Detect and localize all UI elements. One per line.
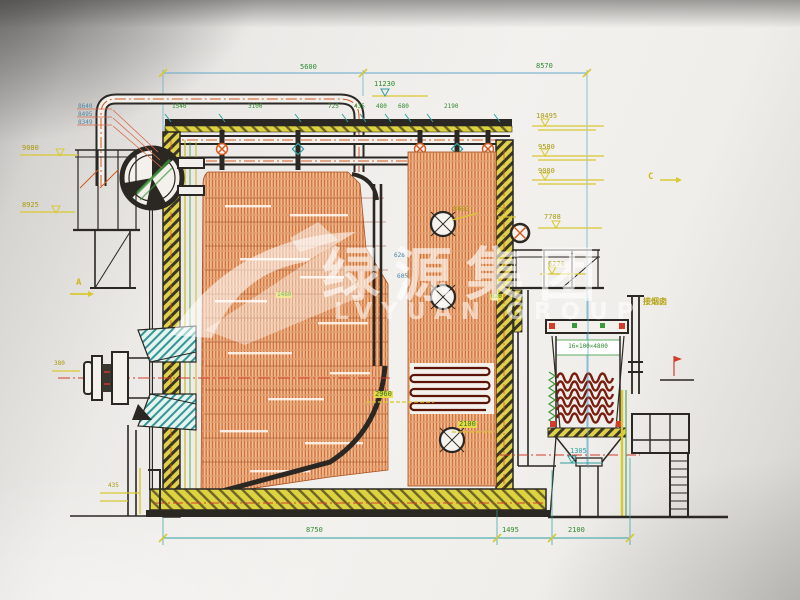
dim-label-11230: 11230: [374, 81, 395, 88]
economizer-spec-label: 16×100×4800: [557, 343, 619, 350]
elev-label-9580: 9580: [538, 144, 555, 151]
dim-label-435-base: 435: [108, 483, 119, 489]
dim-label-8570: 8570: [536, 63, 553, 70]
elev-label-7708: 7708: [544, 214, 561, 221]
dim-label-770: 770: [496, 208, 507, 214]
dim-label-620: 620: [490, 294, 503, 300]
dim-label-1540: 1540: [172, 104, 186, 110]
dim-label-680: 680: [398, 104, 409, 110]
elev-label-8640: 8640: [78, 104, 92, 110]
superheater-coil: [411, 368, 490, 410]
elev-label-1305: 1305: [570, 448, 587, 455]
dim-label-435: 435: [354, 104, 365, 110]
dim-label-1480: 1480: [276, 292, 292, 298]
blueprint-photo: 5600 8570 11230 1540 3100 725 435 480 68…: [0, 0, 800, 600]
section-marker-c: C: [648, 173, 653, 182]
economizer: [546, 298, 628, 517]
dim-label-1495: 1495: [502, 527, 519, 534]
dim-label-2100-bottom: 2100: [568, 527, 585, 534]
dim-label-605: 605: [397, 274, 408, 280]
dim-label-2960: 2960: [374, 391, 393, 398]
elev-label-9080-right: 9080: [538, 168, 555, 175]
furnace-chamber: [58, 172, 390, 497]
dim-label-380: 380: [54, 361, 65, 367]
section-marker-a: A: [76, 279, 81, 288]
dim-label-2190: 2190: [444, 104, 458, 110]
elev-label-8925: 8925: [22, 202, 39, 209]
elev-label-10495: 10495: [536, 113, 557, 120]
elev-label-6270: 6270: [548, 261, 565, 268]
economizer-coils: [557, 374, 613, 423]
elev-label-9080-left: 9080: [22, 145, 39, 152]
dim-label-480: 480: [376, 104, 387, 110]
mid-level-mark: [560, 456, 602, 463]
dim-label-2100-mid: 2100: [458, 421, 477, 428]
dim-label-628: 628: [394, 253, 405, 259]
dim-label-8750: 8750: [306, 527, 323, 534]
dim-label-5600: 5600: [300, 64, 317, 71]
elev-label-8603: 8603: [453, 206, 470, 213]
chimney-duct: [627, 296, 694, 394]
elev-label-8495: 8495: [78, 112, 92, 118]
dim-label-3100: 3100: [248, 104, 262, 110]
dim-label-725: 725: [328, 104, 339, 110]
chimney-connection-label: 接烟囱: [643, 296, 667, 307]
drawing-canvas: [0, 0, 800, 600]
elev-label-8349: 8349: [78, 120, 92, 126]
